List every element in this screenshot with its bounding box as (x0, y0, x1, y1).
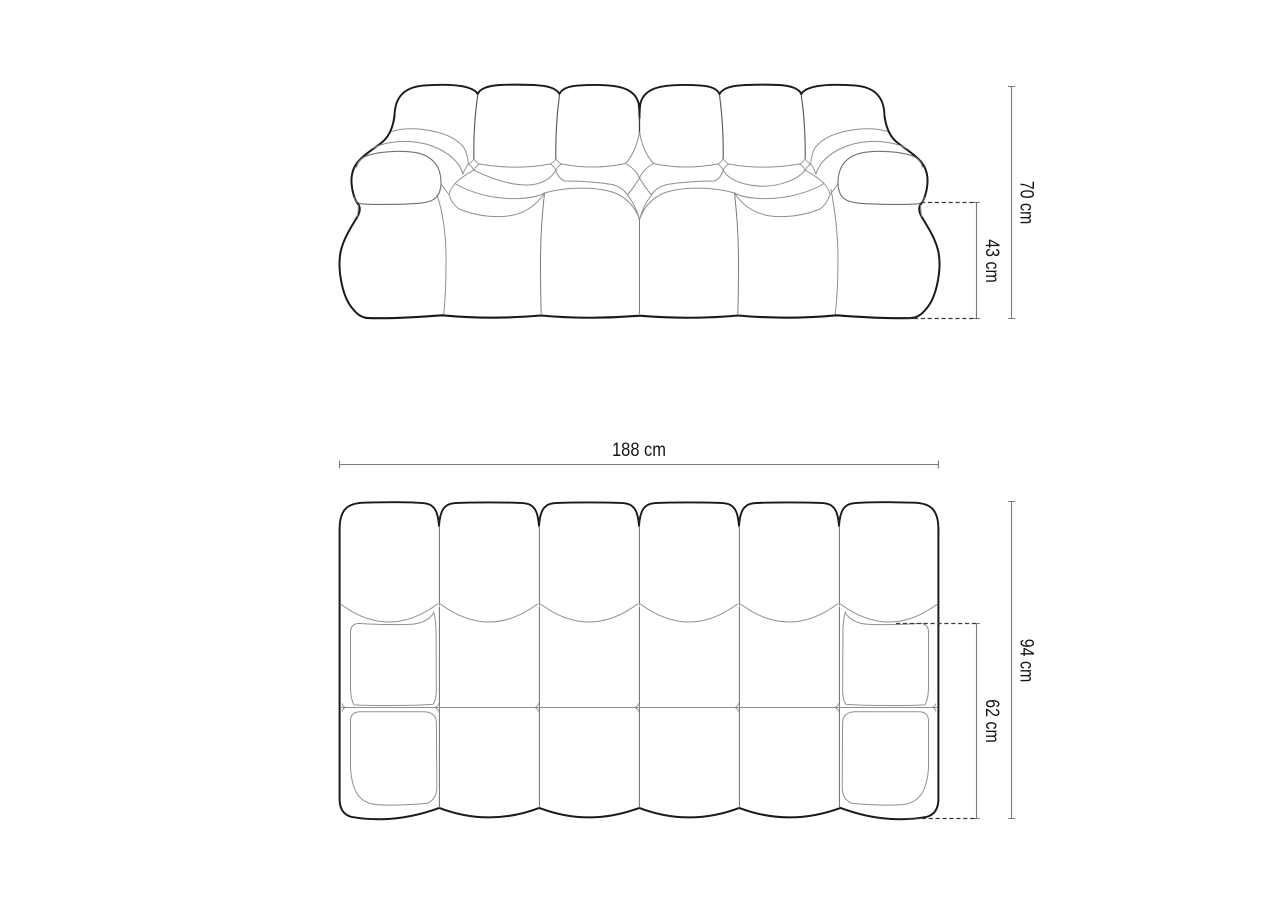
svg-text:94 cm: 94 cm (1016, 639, 1037, 683)
svg-text:188 cm: 188 cm (612, 440, 666, 461)
svg-text:43 cm: 43 cm (981, 239, 1002, 283)
svg-text:70 cm: 70 cm (1016, 181, 1037, 225)
svg-text:62 cm: 62 cm (981, 699, 1002, 743)
